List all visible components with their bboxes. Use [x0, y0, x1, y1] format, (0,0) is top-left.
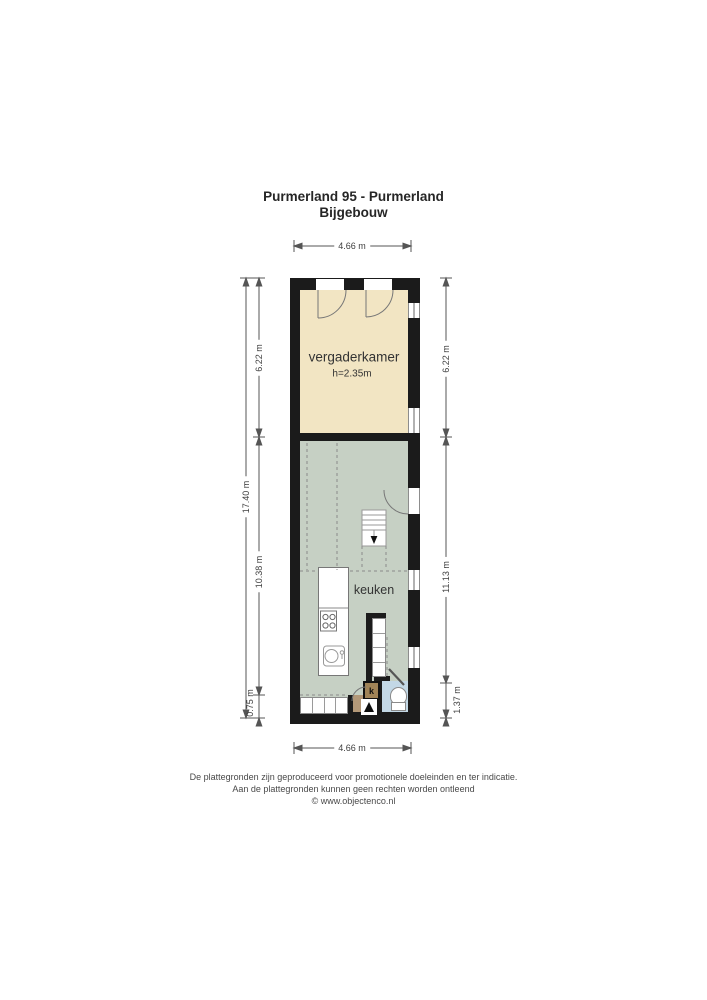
floorplan-page: { "title": { "line1": "Purmerland 95 - P…: [0, 0, 707, 1000]
dim-bottom: 4.66 m: [334, 743, 370, 753]
dashed-guides: [300, 443, 408, 695]
disclaimer-copyright: © www.objectenco.nl: [0, 795, 707, 807]
dim-left-middle: 10.38 m: [254, 552, 264, 593]
disclaimer: De plattegronden zijn geproduceerd voor …: [0, 771, 707, 807]
stove-icon: [319, 608, 348, 631]
dimension-lines: [240, 240, 452, 754]
stairs-icon: [362, 510, 386, 546]
label-vergaderkamer-height: h=2.35m: [332, 369, 371, 380]
door-icons: [316, 279, 420, 701]
dim-right-middle: 11.13 m: [441, 557, 451, 597]
dim-right-top: 6.22 m: [441, 341, 451, 377]
disclaimer-line1: De plattegronden zijn geproduceerd voor …: [0, 771, 707, 783]
disclaimer-line2: Aan de plattegronden kunnen geen rechten…: [0, 783, 707, 795]
label-vergaderkamer: vergaderkamer: [309, 350, 400, 365]
dim-left-top: 6.22 m: [254, 340, 264, 376]
dim-left-bottom: 0.75 m: [245, 685, 255, 721]
dim-left-total: 17.40 m: [241, 477, 251, 518]
window-icons: [409, 303, 420, 668]
sink-icon: [324, 646, 345, 666]
dim-top: 4.66 m: [334, 241, 370, 251]
floorplan-annotations: [0, 0, 707, 1000]
dim-right-bottom: 1.37 m: [452, 682, 462, 718]
label-keuken: keuken: [354, 583, 394, 597]
